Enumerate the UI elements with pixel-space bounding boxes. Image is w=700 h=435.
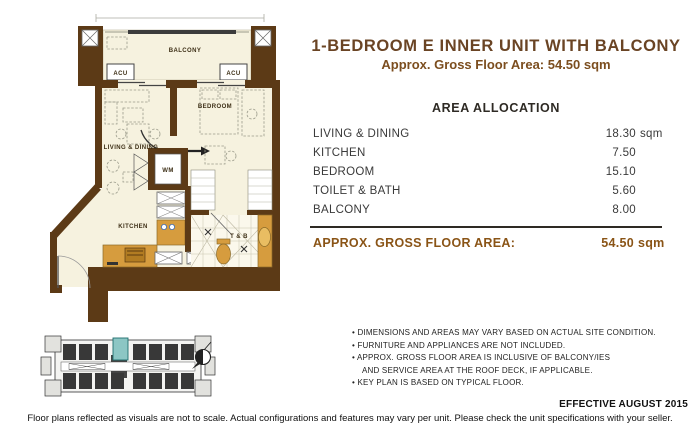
row-value: 5.60 (596, 185, 636, 197)
acu-right: ACU (220, 64, 247, 80)
total-unit: sqm (634, 236, 662, 250)
row-label: KITCHEN (313, 147, 366, 159)
row-unit (636, 166, 662, 178)
total-label: APPROX. GROSS FLOOR AREA: (313, 236, 515, 250)
total-row: APPROX. GROSS FLOOR AREA: 54.50sqm (313, 236, 662, 250)
note-line: FURNITURE AND APPLIANCES ARE NOT INCLUDE… (352, 340, 682, 353)
kitchen-label: KITCHEN (118, 224, 147, 230)
row-label: LIVING & DINING (313, 128, 410, 140)
info-panel: 1-BEDROOM E INNER UNIT WITH BALCONY Appr… (300, 0, 692, 250)
table-row: BEDROOM 15.10 (313, 166, 662, 185)
row-label: TOILET & BATH (313, 185, 401, 197)
table-divider (310, 226, 662, 228)
unit-floor-plan: ACU ACU (33, 4, 285, 326)
row-unit (636, 147, 662, 159)
dimension-line (96, 14, 264, 22)
balcony-railing (128, 30, 236, 34)
table-row: LIVING & DINING 18.30sqm (313, 128, 662, 147)
kitchen-tb-wall (185, 186, 191, 252)
note-line: APPROX. GROSS FLOOR AREA IS INCLUSIVE OF… (352, 352, 682, 365)
floor-plan-page: ACU ACU (0, 0, 700, 435)
balcony-label: BALCONY (169, 48, 201, 54)
note-line: KEY PLAN IS BASED ON TYPICAL FLOOR. (352, 377, 682, 390)
table-row: BALCONY 8.00 (313, 204, 662, 223)
note-line: AND SERVICE AREA AT THE ROOF DECK, IF AP… (352, 365, 682, 378)
row-value: 18.30 (596, 128, 636, 140)
svg-text:T & B: T & B (230, 234, 248, 240)
row-label: BALCONY (313, 204, 370, 216)
page-subtitle: Approx. Gross Floor Area: 54.50 sqm (300, 57, 692, 73)
page-title: 1-BEDROOM E INNER UNIT WITH BALCONY (300, 36, 692, 56)
acu-left: ACU (107, 64, 134, 80)
area-allocation-heading: AREA ALLOCATION (300, 101, 692, 116)
row-value: 7.50 (596, 147, 636, 159)
bedroom-partition-wall (170, 80, 177, 136)
svg-text:ACU: ACU (113, 71, 127, 77)
svg-text:WM: WM (162, 168, 173, 174)
note-line: DIMENSIONS AND AREAS MAY VARY BASED ON A… (352, 327, 682, 340)
row-unit (636, 204, 662, 216)
area-allocation-table: LIVING & DINING 18.30sqm KITCHEN 7.50 BE… (313, 128, 662, 223)
svg-text:ACU: ACU (226, 71, 240, 77)
row-value: 15.10 (596, 166, 636, 178)
key-plan (33, 330, 233, 404)
effective-date: EFFECTIVE AUGUST 2015 (559, 399, 688, 410)
row-unit (636, 185, 662, 197)
row-unit: sqm (636, 128, 662, 140)
table-row: KITCHEN 7.50 (313, 147, 662, 166)
notes-list: DIMENSIONS AND AREAS MAY VARY BASED ON A… (352, 327, 682, 390)
highlighted-unit (113, 338, 128, 360)
table-row: TOILET & BATH 5.60 (313, 185, 662, 204)
total-value: 54.50 (594, 236, 634, 250)
row-label: BEDROOM (313, 166, 375, 178)
row-value: 8.00 (596, 204, 636, 216)
toilet-bath: T & B (191, 210, 272, 267)
living-dining-label: LIVING & DINING (104, 145, 159, 151)
bedroom-label: BEDROOM (198, 104, 232, 110)
footer-disclaimer: Floor plans reflected as visuals are not… (0, 413, 700, 424)
